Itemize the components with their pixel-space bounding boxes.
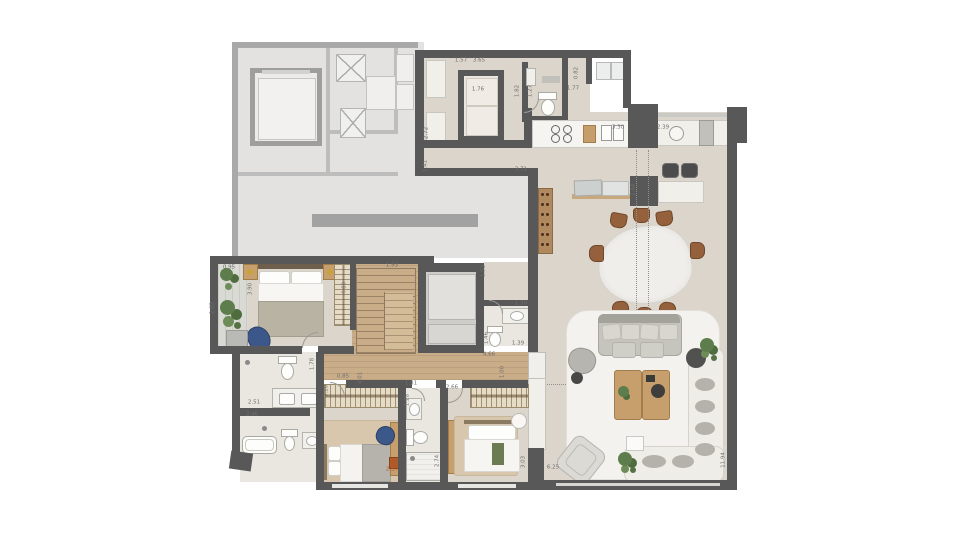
dimension-label: 4.66 — [483, 352, 495, 358]
window-strip — [332, 484, 388, 488]
dimension-label: 3.71 — [515, 167, 527, 173]
dimension-label: 2.44 — [631, 184, 637, 196]
dimension-label: 0.95 — [223, 265, 235, 271]
dimension-label: 1.00 — [500, 366, 506, 378]
dimension-label: 3.30 — [612, 125, 624, 131]
dimension-label: 2.82 — [210, 302, 216, 314]
window-glass-line — [556, 483, 720, 486]
dimension-label: 1.31 — [405, 381, 417, 387]
dimension-label: 2.66 — [446, 385, 458, 391]
dimension-label: 2.72 — [424, 127, 430, 139]
dimension-label: 2.39 — [657, 125, 669, 131]
dimension-label: 1.41 — [423, 160, 429, 172]
dimension-label: 1.78 — [310, 358, 316, 370]
dimension-label: 1.76 — [472, 87, 484, 93]
dimension-layer: 1.573.651.761.821.270.821.772.721.413.71… — [0, 0, 960, 540]
dimension-label: 3.03 — [521, 456, 527, 468]
dimension-label: 1.82 — [515, 85, 521, 97]
dimension-label: 1.57 — [455, 58, 467, 64]
dimension-label: 2.57 — [386, 467, 398, 473]
dimension-label: 1.77 — [567, 86, 579, 92]
dimension-label: 1.27 — [528, 85, 534, 97]
dimension-label: 2.74 — [435, 455, 441, 467]
window-strip — [458, 484, 516, 488]
dimension-label: 6.25 — [547, 465, 559, 471]
dimension-label: 1.46 — [484, 332, 490, 344]
dimension-label: 2.46 — [246, 412, 258, 418]
dimension-label: 1.50 — [515, 301, 527, 307]
dimension-label: 0.82 — [574, 67, 580, 79]
dimension-label: 4.01 — [358, 372, 364, 384]
dimension-label: 1.39 — [512, 341, 524, 347]
dimension-label: 1.52 — [481, 265, 487, 277]
dimension-label: 2.51 — [248, 400, 260, 406]
dimension-label: 1.93 — [386, 263, 398, 269]
dimension-label: 4.60 — [342, 282, 348, 294]
floor-plan-canvas: 1.573.651.761.821.270.821.772.721.413.71… — [0, 0, 960, 540]
dimension-label: 3.90 — [248, 283, 254, 295]
dimension-label: 3.65 — [473, 58, 485, 64]
dimension-label: 1.28 — [405, 394, 411, 406]
dimension-label: 0.85 — [337, 374, 349, 380]
dimension-label: 11.94 — [721, 452, 727, 468]
dimension-label: 3.10 — [324, 385, 330, 397]
